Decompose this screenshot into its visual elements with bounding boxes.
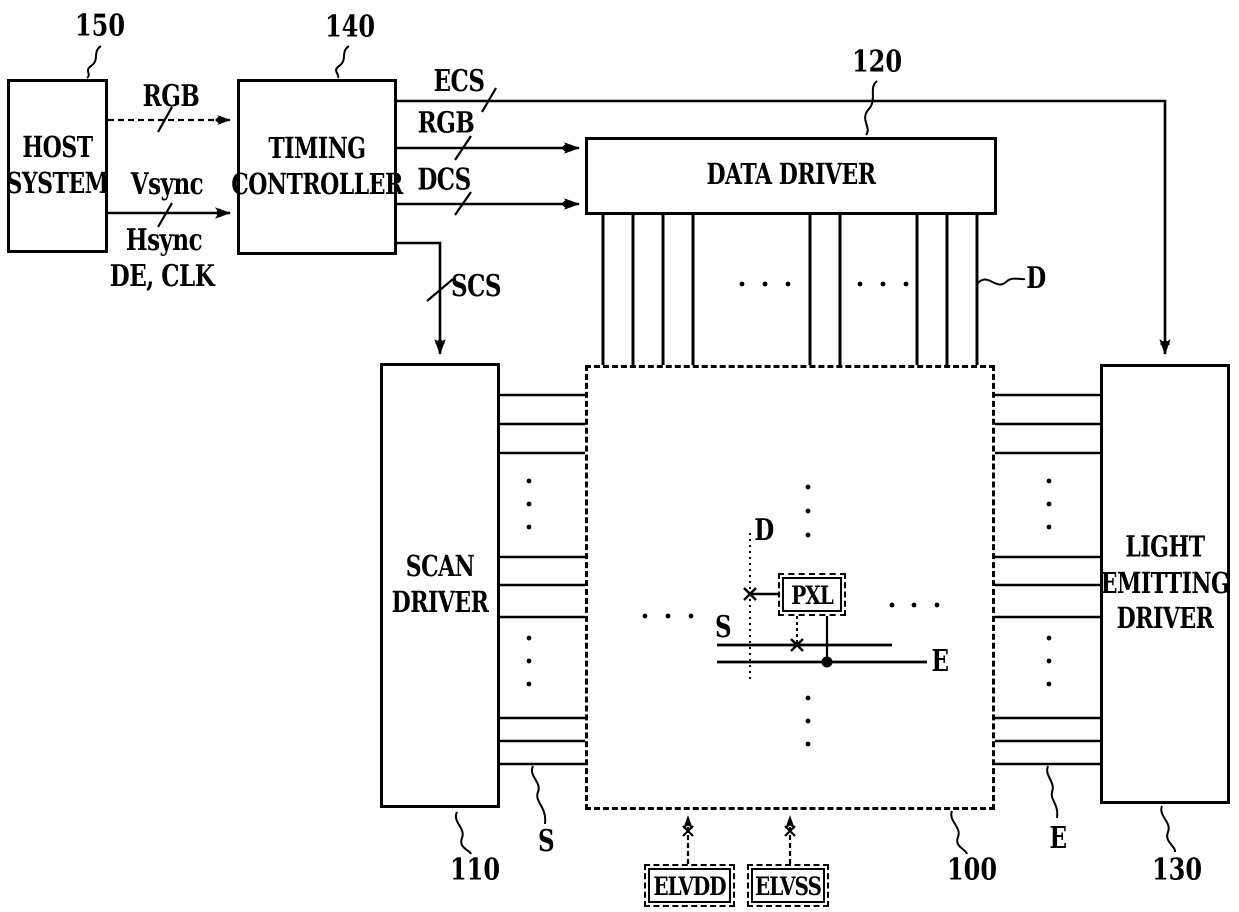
ref-numeral-display-panel: 100	[947, 851, 997, 887]
scan-bus-label: S	[538, 823, 554, 858]
pixel-block-inner: PXL	[782, 577, 842, 612]
pixel-scan-line-label: S	[715, 609, 731, 644]
data-driver-label: DATA DRIVER	[706, 158, 875, 194]
light-emitting-driver-label: LIGHT EMITTING DRIVER	[1101, 530, 1230, 637]
pixel-data-line-label: D	[754, 512, 773, 547]
pixel-block: PXL	[778, 573, 846, 616]
ref-numeral-host-system: 150	[75, 7, 125, 43]
data-lines	[603, 215, 977, 365]
data-bus-label: D	[1026, 260, 1045, 295]
patent-block-diagram: HOST SYSTEM TIMING CONTROLLER DATA DRIVE…	[0, 0, 1239, 912]
ref-numeral-data-driver: 120	[852, 43, 902, 79]
de-clk-signal-label: DE, CLK	[110, 258, 214, 293]
elvss-supply-box: ELVSS	[747, 864, 829, 907]
dcs-signal-label: DCS	[417, 162, 470, 197]
rgb-signal-label: RGB	[418, 105, 475, 140]
pixel-emit-line-label: E	[931, 643, 948, 678]
ecs-signal-label: ECS	[434, 63, 485, 98]
hsync-signal-label: Hsync	[126, 222, 202, 257]
scan-driver-block: SCAN DRIVER	[380, 363, 500, 808]
host-rgb-signal-label: RGB	[143, 78, 200, 113]
vsync-signal-label: Vsync	[131, 166, 203, 201]
elvdd-supply-box-inner: ELVDD	[648, 868, 731, 903]
emission-lines	[995, 395, 1100, 764]
elvss-supply-box-inner: ELVSS	[751, 868, 825, 903]
data-driver-block: DATA DRIVER	[585, 137, 997, 215]
elvdd-supply-box: ELVDD	[644, 864, 735, 907]
power-feed-wires	[683, 816, 795, 864]
elvdd-label: ELVDD	[653, 871, 725, 901]
timing-controller-block: TIMING CONTROLLER	[237, 79, 397, 255]
host-system-block: HOST SYSTEM	[7, 79, 108, 253]
pixel-label: PXL	[791, 580, 833, 610]
ref-numeral-timing-controller: 140	[325, 8, 375, 44]
timing-controller-label: TIMING CONTROLLER	[231, 131, 403, 203]
light-emitting-driver-block: LIGHT EMITTING DRIVER	[1100, 364, 1230, 804]
timing-output-wires	[397, 88, 1165, 354]
emit-bus-label: E	[1049, 820, 1066, 855]
scan-driver-label: SCAN DRIVER	[392, 550, 489, 622]
scan-lines	[500, 395, 585, 764]
elvss-label: ELVSS	[755, 871, 821, 901]
host-system-label: HOST SYSTEM	[7, 130, 109, 202]
ref-numeral-light-emitting-driver: 130	[1152, 851, 1202, 887]
scs-signal-label: SCS	[451, 268, 501, 303]
ref-numeral-scan-driver: 110	[450, 851, 500, 887]
